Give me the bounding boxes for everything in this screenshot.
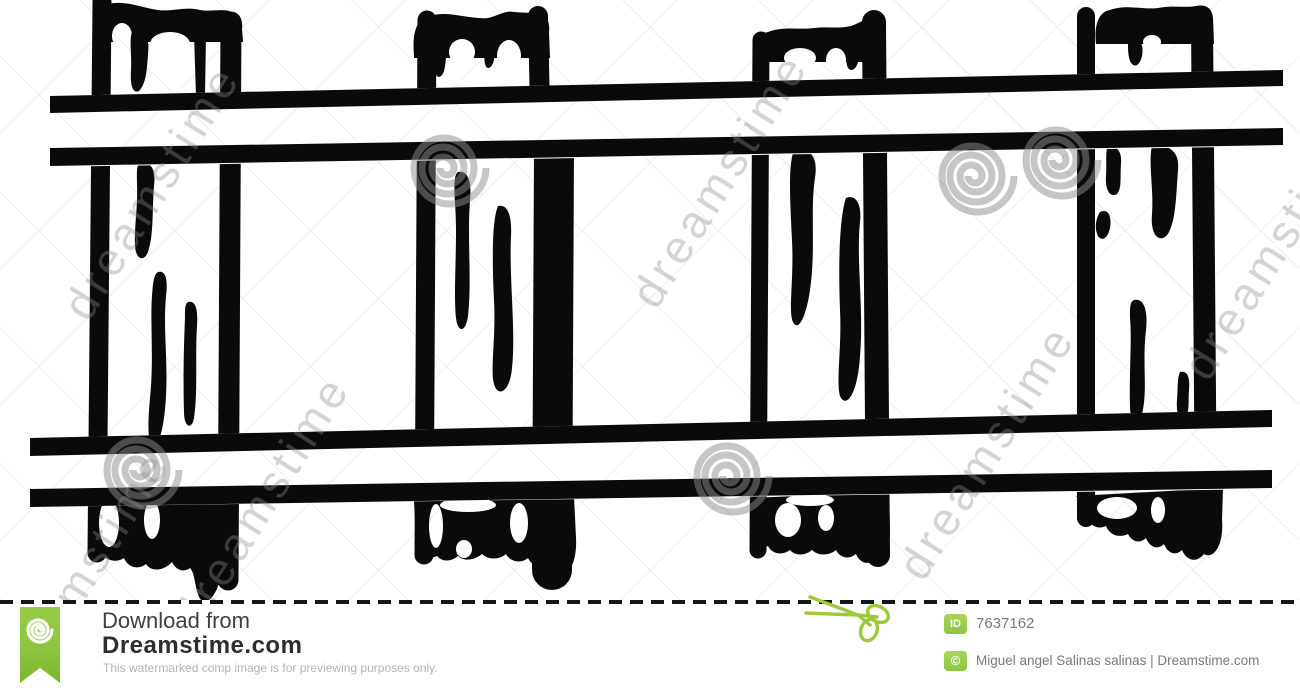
tie3-grain	[839, 197, 862, 401]
tie1-grain	[184, 302, 198, 426]
scissors-icon	[798, 593, 898, 648]
railroad-tracks-illustration: dreamstime dreamstime dreamstime dreamst…	[0, 0, 1300, 600]
image-id: 7637162	[976, 615, 1034, 632]
tie4-bottom-cap	[1076, 488, 1223, 560]
dreamstime-footer: Download from Dreamstime.com This waterm…	[0, 600, 1300, 690]
railroad-tracks-svg: dreamstime dreamstime dreamstime dreamst…	[0, 0, 1300, 600]
tie3-cap-drip	[846, 36, 860, 70]
tie4-grain	[1096, 211, 1111, 239]
watermarked-stock-preview: dreamstime dreamstime dreamstime dreamst…	[0, 0, 1300, 690]
tie2-cap-drip	[433, 40, 446, 77]
dashed-cut-line	[0, 600, 1300, 604]
tie4-grain	[1177, 372, 1189, 419]
site-name: Dreamstime.com	[102, 632, 302, 660]
dreamstime-ribbon-logo	[20, 607, 60, 683]
author-credit: Miguel angel Salinas salinas | Dreamstim…	[976, 653, 1259, 668]
id-badge: ID	[944, 614, 967, 634]
dreamstime-spiral-icon	[25, 615, 55, 645]
download-from-label: Download from	[102, 608, 250, 634]
tie3-grain	[790, 150, 816, 325]
tie4-grain	[1130, 300, 1147, 421]
tie2-grain	[493, 206, 514, 392]
tie1-cap-drip	[131, 32, 149, 92]
tie4-grain	[1106, 146, 1121, 195]
tie4-cap-drip	[1128, 38, 1142, 66]
tie1-grain	[148, 272, 166, 446]
dreamstime-text-watermark: dreamstime	[1172, 115, 1300, 389]
dreamstime-spiral-watermark	[942, 146, 1014, 212]
tie4-grain	[1151, 146, 1179, 239]
watermark-disclaimer: This watermarked comp image is for previ…	[103, 661, 438, 675]
copyright-badge: ©	[944, 651, 967, 671]
tie2-cap-drip	[484, 38, 495, 68]
